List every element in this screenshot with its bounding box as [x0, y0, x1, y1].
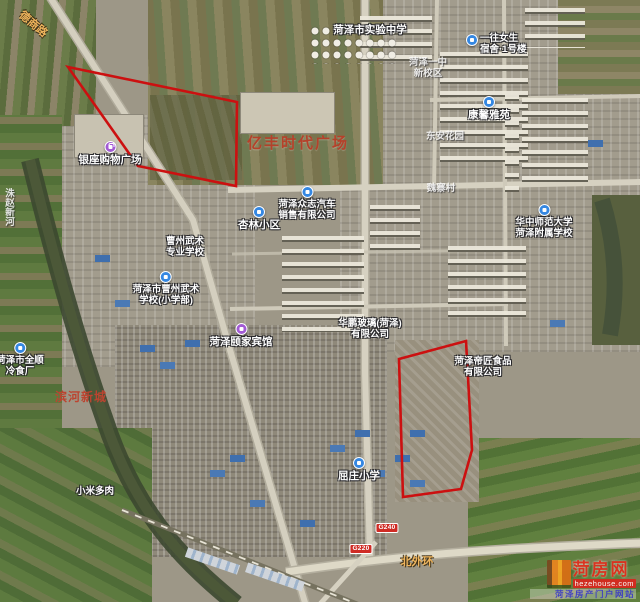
- shopping-marker-icon[interactable]: [104, 141, 116, 153]
- label-text: 亿丰时代广场: [247, 132, 349, 153]
- place-marker-icon[interactable]: [466, 34, 478, 46]
- label-text: 曹州武术专业学校: [166, 236, 204, 258]
- labels-layer: 菏泽市实验中学一往女生宿舍·1号楼菏泽一中新校区康馨雅苑东安花园亿丰时代广场银座…: [0, 0, 640, 602]
- hotel-marker-icon[interactable]: [235, 323, 247, 335]
- label-text: 魏寨村: [427, 183, 456, 194]
- dijiang-food-co-label[interactable]: 菏泽帝匠食品有限公司: [454, 356, 511, 378]
- label-text: 东安花园: [426, 131, 464, 142]
- place-marker-icon[interactable]: [301, 186, 313, 198]
- label-text: 菏泽帝匠食品有限公司: [454, 356, 511, 378]
- place-marker-icon[interactable]: [538, 204, 550, 216]
- zhuzhao-new-river-label: 洙赵新河: [3, 188, 14, 226]
- label-text: 康馨雅苑: [468, 109, 510, 121]
- yifeng-times-plaza-label[interactable]: 亿丰时代广场: [247, 132, 349, 153]
- quanshun-cold-storage-label[interactable]: 菏泽市全顺冷食厂: [0, 342, 44, 377]
- label-text: 菏泽一中新校区: [409, 57, 447, 79]
- heze-no1-middle-school-label[interactable]: 菏泽一中新校区: [409, 57, 447, 79]
- caozhou-martial-arts-school-label[interactable]: 曹州武术专业学校: [166, 236, 204, 258]
- dorm-building-label[interactable]: 一往女生宿舍·1号楼: [466, 33, 526, 55]
- label-text: 北外环: [401, 553, 434, 569]
- label-text: 小米多肉: [76, 486, 114, 497]
- label-text: 屈庄小学: [338, 470, 380, 482]
- label-text: 菏泽市曹州武术学校(小学部): [133, 284, 200, 306]
- shiyan-middle-school-label[interactable]: 菏泽市实验中学: [333, 24, 407, 36]
- road-badge-g220: G220: [349, 544, 372, 554]
- watermark-tagline: 菏泽房产门户网站: [530, 589, 636, 599]
- watermark-domain: hezehouse.com: [573, 579, 636, 588]
- place-marker-icon[interactable]: [353, 457, 365, 469]
- label-text: 一往女生宿舍·1号楼: [480, 33, 526, 55]
- xinglin-residential-label[interactable]: 杏林小区: [238, 206, 280, 231]
- kangxin-yayuan-label[interactable]: 康馨雅苑: [468, 96, 510, 121]
- north-outer-ring-road-label: 北外环: [401, 553, 434, 569]
- yijia-hotel-label[interactable]: 菏泽颐家宾馆: [210, 323, 273, 348]
- deshang-road-label: 德商路: [16, 10, 48, 40]
- satellite-map[interactable]: 菏泽市实验中学一往女生宿舍·1号楼菏泽一中新校区康馨雅苑东安花园亿丰时代广场银座…: [0, 0, 640, 602]
- weizhai-village-label: 魏寨村: [427, 183, 456, 194]
- dongan-garden-label[interactable]: 东安花园: [426, 131, 464, 142]
- watermark-site-name: 菏房网: [573, 561, 636, 579]
- label-text: 华鹏玻璃(菏泽)有限公司: [338, 318, 401, 340]
- zhongzhi-auto-sales-label[interactable]: 菏泽众志汽车销售有限公司: [278, 186, 335, 221]
- label-text: 杏林小区: [238, 219, 280, 231]
- label-text: 菏泽市全顺冷食厂: [0, 355, 44, 377]
- yinzuo-shopping-plaza-label[interactable]: 银座购物广场: [79, 141, 142, 166]
- place-marker-icon[interactable]: [160, 271, 172, 283]
- place-marker-icon[interactable]: [253, 206, 265, 218]
- place-marker-icon[interactable]: [483, 96, 495, 108]
- binhe-new-town-label[interactable]: 滨河新城: [55, 388, 107, 405]
- quzhuang-primary-school-label[interactable]: 屈庄小学: [338, 457, 380, 482]
- label-text: 菏泽市实验中学: [333, 24, 407, 36]
- label-text: 洙赵新河: [3, 188, 14, 226]
- label-text: 菏泽众志汽车销售有限公司: [278, 199, 335, 221]
- label-text: 华中师范大学菏泽附属学校: [515, 217, 572, 239]
- label-text: 银座购物广场: [79, 154, 142, 166]
- site-watermark: 菏房网 hezehouse.com 菏泽房产门户网站: [530, 560, 636, 599]
- hezehouse-logo-icon: [547, 560, 571, 588]
- road-badge-g240: G240: [375, 523, 398, 533]
- label-text: 滨河新城: [55, 388, 107, 405]
- huazhong-normal-univ-affiliated-school-label[interactable]: 华中师范大学菏泽附属学校: [515, 204, 572, 239]
- huapeng-glass-co-label[interactable]: 华鹏玻璃(菏泽)有限公司: [338, 318, 401, 340]
- label-text: 德商路: [16, 10, 48, 40]
- label-text: 菏泽颐家宾馆: [210, 336, 273, 348]
- place-marker-icon[interactable]: [14, 342, 26, 354]
- martial-arts-primary-school-label[interactable]: 菏泽市曹州武术学校(小学部): [133, 271, 200, 306]
- xiaomi-succulents-label[interactable]: 小米多肉: [76, 486, 114, 497]
